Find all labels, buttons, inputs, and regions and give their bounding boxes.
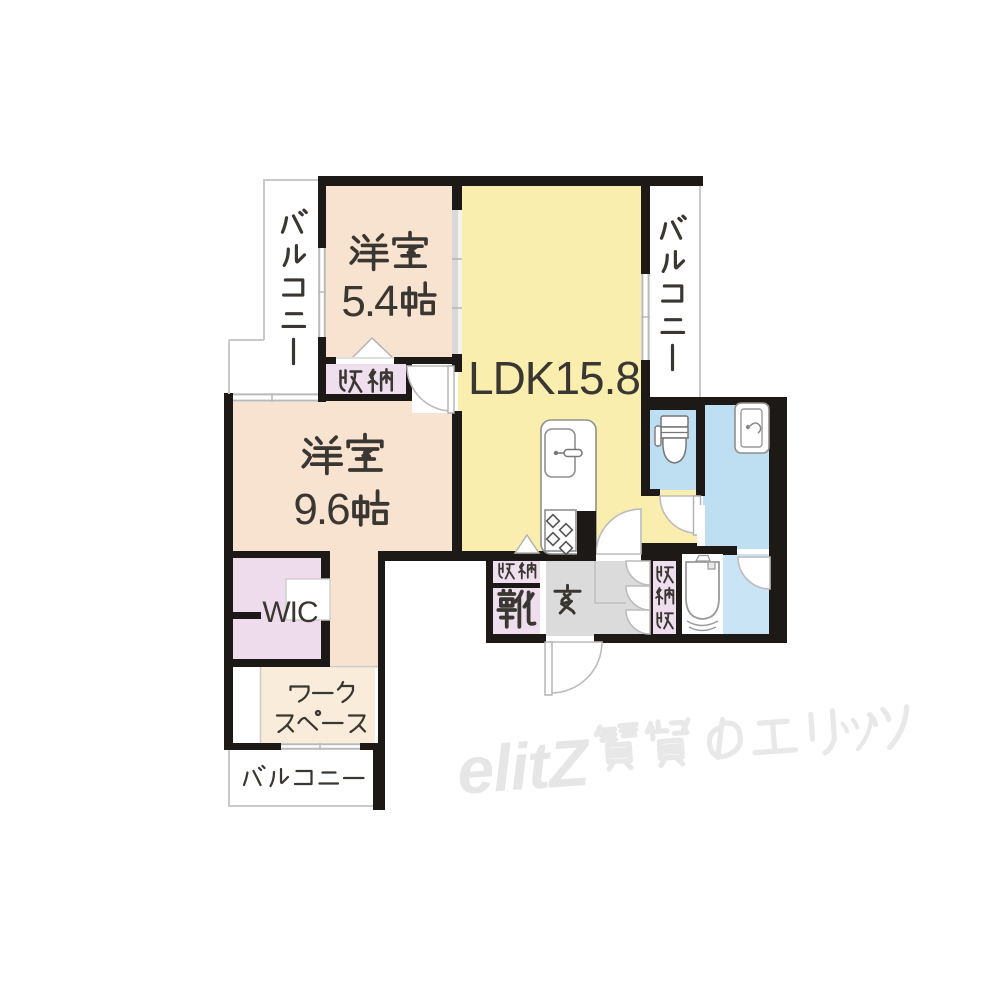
svg-text:LDK15.8: LDK15.8 (468, 352, 640, 404)
svg-text:elitZ: elitZ (455, 725, 594, 808)
svg-text:9.6: 9.6 (293, 485, 349, 534)
svg-text:WIC: WIC (262, 596, 318, 629)
svg-text:5.4: 5.4 (341, 277, 398, 326)
